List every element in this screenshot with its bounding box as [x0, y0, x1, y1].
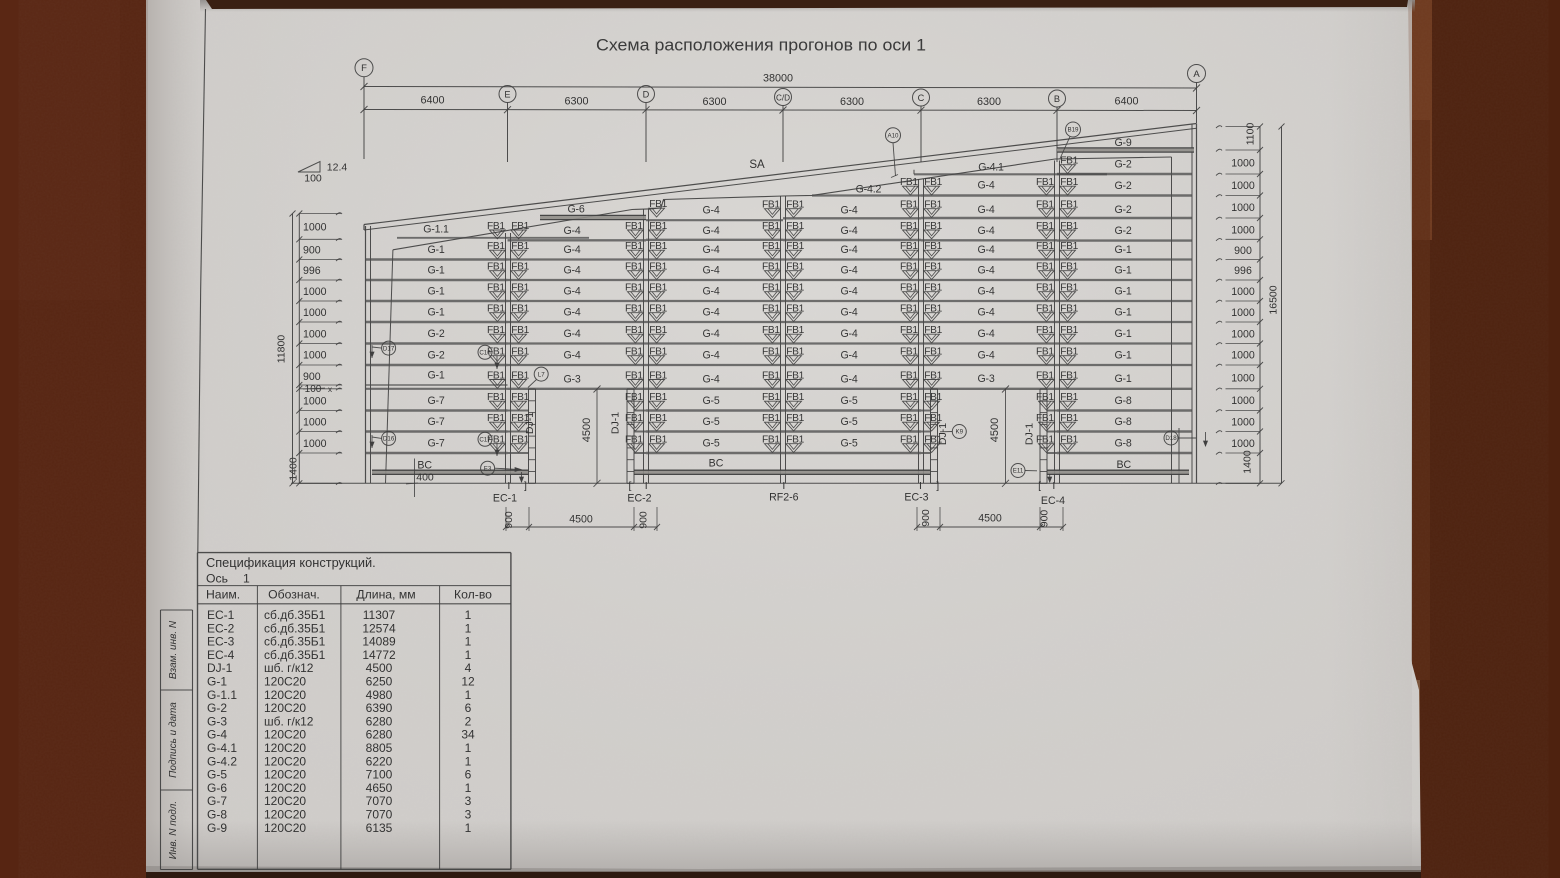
svg-text:G-1: G-1 — [427, 307, 444, 319]
svg-text:G-1: G-1 — [427, 244, 444, 256]
svg-text:G-4: G-4 — [563, 265, 580, 277]
svg-text:B: B — [1054, 94, 1060, 104]
svg-text:G-3: G-3 — [977, 373, 994, 385]
svg-text:G-1: G-1 — [207, 675, 227, 689]
svg-text:G-1: G-1 — [1114, 244, 1131, 256]
svg-text:1000: 1000 — [1231, 157, 1255, 169]
svg-text:Спецификация конструкций.: Спецификация конструкций. — [206, 555, 376, 570]
svg-text:I: I — [645, 480, 648, 492]
svg-text:G-4.1: G-4.1 — [978, 161, 1004, 173]
svg-text:6390: 6390 — [366, 701, 393, 715]
svg-text:G-4: G-4 — [977, 265, 994, 277]
svg-text:100: 100 — [305, 384, 322, 395]
svg-text:G-4: G-4 — [563, 328, 580, 340]
svg-text:120С20: 120С20 — [264, 794, 306, 808]
svg-text:900: 900 — [303, 244, 321, 256]
svg-text:A10: A10 — [887, 132, 899, 139]
svg-text:EC-4: EC-4 — [1041, 495, 1065, 507]
svg-text:6300: 6300 — [702, 96, 726, 108]
svg-text:сб.дб.35Б1: сб.дб.35Б1 — [264, 648, 326, 662]
svg-text:1: 1 — [465, 608, 472, 622]
svg-text:1000: 1000 — [303, 416, 327, 428]
svg-text:11800: 11800 — [276, 335, 288, 364]
svg-text:сб.дб.35Б1: сб.дб.35Б1 — [264, 635, 326, 649]
svg-text:1000: 1000 — [303, 307, 327, 319]
svg-text:G-2: G-2 — [1114, 225, 1131, 237]
svg-text:G-6: G-6 — [567, 204, 584, 216]
svg-text:G-1: G-1 — [427, 265, 444, 277]
svg-text:G-1: G-1 — [1114, 328, 1131, 340]
svg-text:E11: E11 — [1013, 468, 1024, 475]
svg-text:1400: 1400 — [1242, 450, 1254, 474]
svg-text:6: 6 — [465, 768, 472, 782]
svg-text:G-4: G-4 — [840, 225, 857, 237]
svg-text:1000: 1000 — [303, 438, 327, 450]
svg-text:996: 996 — [303, 265, 321, 277]
svg-text:400: 400 — [416, 472, 434, 484]
svg-text:120С20: 120С20 — [264, 768, 306, 782]
svg-text:A: A — [1193, 69, 1200, 80]
svg-text:120С20: 120С20 — [264, 741, 306, 755]
svg-text:x: x — [328, 385, 332, 394]
svg-text:6: 6 — [465, 701, 472, 715]
svg-text:G-1: G-1 — [1114, 373, 1131, 385]
svg-text:G-8: G-8 — [1114, 438, 1131, 450]
svg-text:1000: 1000 — [1231, 438, 1255, 450]
svg-text:16500: 16500 — [1268, 285, 1280, 314]
svg-text:G-7: G-7 — [427, 416, 444, 428]
svg-text:7070: 7070 — [366, 808, 393, 822]
svg-text:SA: SA — [749, 159, 765, 171]
svg-text:шб. г/к12: шб. г/к12 — [264, 714, 314, 728]
svg-text:G-4: G-4 — [702, 225, 719, 237]
svg-text:I: I — [1052, 480, 1055, 492]
svg-text:Наим.: Наим. — [206, 588, 240, 602]
svg-text:900: 900 — [1234, 245, 1252, 257]
svg-text:4500: 4500 — [569, 514, 593, 526]
svg-text:C16: C16 — [479, 350, 491, 357]
svg-text:6400: 6400 — [420, 95, 444, 107]
svg-text:G-4: G-4 — [977, 204, 994, 216]
svg-text:Подпись и дата: Подпись и дата — [168, 702, 179, 778]
svg-text:14772: 14772 — [362, 648, 396, 662]
svg-text:BC: BC — [417, 460, 432, 472]
svg-text:G-5: G-5 — [840, 416, 857, 428]
svg-text:Ось: Ось — [206, 572, 228, 586]
svg-text:G-2: G-2 — [427, 328, 444, 340]
svg-text:11307: 11307 — [363, 608, 396, 622]
svg-text:DJ-1: DJ-1 — [1024, 423, 1036, 445]
svg-text:E3: E3 — [484, 465, 492, 472]
svg-text:G-6: G-6 — [207, 781, 227, 795]
svg-text:G-8: G-8 — [207, 808, 227, 822]
svg-text:EC-4: EC-4 — [207, 648, 235, 662]
svg-text:1000: 1000 — [1231, 372, 1255, 384]
svg-text:G-1: G-1 — [1114, 286, 1131, 298]
svg-text:DJ-1: DJ-1 — [207, 661, 233, 675]
svg-text:12: 12 — [461, 675, 475, 689]
svg-text:G-4: G-4 — [702, 307, 719, 319]
svg-text:G-1: G-1 — [427, 370, 444, 382]
svg-text:G-1: G-1 — [427, 286, 444, 298]
svg-text:120С20: 120С20 — [264, 821, 306, 835]
svg-text:K9: K9 — [956, 429, 964, 436]
svg-text:шб. г/к12: шб. г/к12 — [264, 661, 314, 675]
svg-text:6135: 6135 — [366, 821, 393, 835]
svg-text:RF2-6: RF2-6 — [769, 492, 799, 504]
svg-text:G-4: G-4 — [563, 350, 580, 362]
svg-text:4650: 4650 — [366, 781, 393, 795]
svg-text:Взам. инв. N: Взам. инв. N — [168, 620, 179, 679]
svg-text:1000: 1000 — [1231, 349, 1255, 361]
svg-text:Кол-во: Кол-во — [454, 588, 492, 602]
svg-text:G-4: G-4 — [977, 225, 994, 237]
svg-text:38000: 38000 — [763, 73, 793, 85]
svg-text:7070: 7070 — [366, 794, 393, 808]
svg-text:G-4: G-4 — [563, 286, 580, 298]
svg-text:G-4: G-4 — [563, 244, 580, 256]
svg-text:G-4: G-4 — [977, 286, 994, 298]
svg-text:G-2: G-2 — [207, 701, 227, 715]
svg-text:Обознач.: Обознач. — [268, 588, 320, 602]
svg-text:D18: D18 — [1165, 435, 1177, 442]
svg-text:6300: 6300 — [840, 96, 864, 108]
svg-text:G-9: G-9 — [1114, 137, 1131, 149]
svg-text:G-5: G-5 — [207, 768, 227, 782]
svg-text:EC-3: EC-3 — [904, 492, 928, 504]
svg-text:900: 900 — [920, 509, 932, 527]
svg-text:G-1.1: G-1.1 — [423, 223, 449, 235]
svg-text:C: C — [918, 93, 925, 103]
svg-text:DJ-1: DJ-1 — [524, 412, 536, 434]
svg-text:8805: 8805 — [366, 741, 393, 755]
svg-text:1: 1 — [465, 635, 472, 649]
svg-text:сб.дб.35Б1: сб.дб.35Б1 — [264, 621, 326, 635]
svg-text:G-8: G-8 — [1114, 395, 1131, 407]
svg-text:1100: 1100 — [1245, 123, 1257, 146]
svg-text:100: 100 — [304, 173, 322, 185]
svg-text:G-7: G-7 — [207, 794, 227, 808]
svg-text:6400: 6400 — [1114, 96, 1138, 108]
svg-text:G-4: G-4 — [840, 244, 857, 256]
svg-text:G-4: G-4 — [563, 307, 580, 319]
svg-text:]: ] — [524, 480, 527, 492]
svg-text:EC-2: EC-2 — [207, 621, 235, 635]
svg-text:6250: 6250 — [366, 675, 393, 689]
svg-text:G-5: G-5 — [702, 438, 719, 450]
svg-text:1: 1 — [465, 821, 472, 835]
svg-text:1000: 1000 — [1231, 307, 1255, 319]
svg-text:1000: 1000 — [1231, 286, 1255, 298]
svg-text:G-1: G-1 — [1114, 307, 1131, 319]
svg-text:1000: 1000 — [303, 349, 327, 361]
svg-text:120С20: 120С20 — [264, 675, 306, 689]
svg-text:G-4.2: G-4.2 — [207, 754, 237, 768]
svg-text:G-3: G-3 — [207, 714, 227, 728]
svg-text:G-4: G-4 — [840, 205, 857, 217]
svg-text:6300: 6300 — [564, 95, 588, 107]
svg-text:G-4: G-4 — [702, 244, 719, 256]
svg-text:F: F — [361, 63, 367, 74]
svg-text:G-5: G-5 — [840, 438, 857, 450]
svg-text:]: ] — [936, 480, 939, 492]
svg-text:G-2: G-2 — [427, 350, 444, 362]
svg-text:G-3: G-3 — [563, 373, 580, 385]
svg-text:G-4: G-4 — [840, 328, 857, 340]
svg-text:I: I — [919, 480, 922, 492]
svg-text:EC-2: EC-2 — [627, 493, 651, 505]
svg-text:1000: 1000 — [1231, 225, 1255, 237]
svg-text:G-4: G-4 — [563, 225, 580, 237]
svg-text:G-4: G-4 — [977, 350, 994, 362]
svg-text:G-4: G-4 — [840, 307, 857, 319]
svg-text:G-4: G-4 — [702, 328, 719, 340]
svg-text:DJ-1: DJ-1 — [937, 423, 949, 445]
svg-text:I: I — [782, 480, 785, 492]
svg-text:6220: 6220 — [366, 754, 393, 768]
svg-text:1000: 1000 — [303, 395, 327, 407]
svg-text:G-4: G-4 — [977, 244, 994, 256]
svg-text:1: 1 — [465, 754, 472, 768]
svg-text:L7: L7 — [538, 371, 545, 378]
svg-text:2: 2 — [465, 714, 472, 728]
svg-text:120С20: 120С20 — [264, 808, 306, 822]
svg-text:4980: 4980 — [366, 688, 393, 702]
svg-text:G-9: G-9 — [207, 821, 227, 835]
svg-text:G-4: G-4 — [702, 373, 719, 385]
svg-text:1000: 1000 — [303, 221, 327, 233]
svg-text:6280: 6280 — [366, 714, 393, 728]
svg-text:4500: 4500 — [989, 418, 1001, 442]
svg-text:G-4: G-4 — [977, 180, 994, 192]
svg-text:G-1: G-1 — [1114, 265, 1131, 277]
svg-text:7100: 7100 — [366, 768, 393, 782]
svg-text:BC: BC — [1116, 459, 1131, 471]
svg-text:G-2: G-2 — [1114, 204, 1131, 216]
svg-text:Длина, мм: Длина, мм — [356, 588, 415, 602]
svg-text:G-8: G-8 — [1114, 416, 1131, 428]
svg-text:I: I — [507, 480, 510, 492]
svg-text:900: 900 — [303, 371, 321, 383]
svg-text:900: 900 — [1039, 510, 1051, 528]
svg-text:1400: 1400 — [288, 457, 300, 481]
svg-text:14089: 14089 — [362, 635, 396, 649]
svg-text:G-4: G-4 — [702, 350, 719, 362]
svg-text:G-2: G-2 — [1114, 180, 1131, 192]
svg-text:D: D — [643, 89, 650, 99]
svg-text:4: 4 — [465, 661, 472, 675]
svg-text:G-4: G-4 — [702, 205, 719, 217]
svg-text:G-2: G-2 — [1114, 159, 1131, 171]
svg-text:1: 1 — [465, 741, 472, 755]
svg-text:1: 1 — [465, 648, 472, 662]
svg-text:1000: 1000 — [1231, 417, 1255, 429]
svg-text:Схема расположения прогонов по: Схема расположения прогонов по оси 1 — [596, 36, 926, 55]
svg-text:34: 34 — [461, 728, 475, 742]
svg-text:1000: 1000 — [1231, 328, 1255, 340]
svg-text:G-4: G-4 — [977, 328, 994, 340]
svg-text:G-5: G-5 — [702, 395, 719, 407]
svg-text:G-4: G-4 — [840, 286, 857, 298]
svg-text:3: 3 — [465, 808, 472, 822]
svg-text:G-7: G-7 — [427, 438, 444, 450]
svg-text:1000: 1000 — [303, 328, 327, 340]
svg-text:120С20: 120С20 — [264, 728, 306, 742]
svg-text:120С20: 120С20 — [264, 701, 306, 715]
svg-text:4500: 4500 — [581, 418, 593, 442]
svg-text:Инв. N подл.: Инв. N подл. — [168, 801, 179, 859]
svg-text:G-4: G-4 — [977, 307, 994, 319]
svg-text:G-4: G-4 — [702, 286, 719, 298]
svg-text:G-5: G-5 — [840, 395, 857, 407]
svg-text:[: [ — [629, 480, 632, 492]
svg-text:1: 1 — [465, 781, 472, 795]
svg-text:EC-1: EC-1 — [493, 493, 517, 505]
svg-text:1: 1 — [465, 621, 472, 635]
svg-text:G-1.1: G-1.1 — [207, 688, 237, 702]
svg-text:D17: D17 — [383, 345, 395, 352]
svg-text:4500: 4500 — [978, 513, 1002, 525]
svg-text:G-7: G-7 — [427, 395, 444, 407]
svg-text:12574: 12574 — [362, 621, 396, 635]
svg-text:6300: 6300 — [977, 96, 1001, 108]
svg-text:1000: 1000 — [1231, 395, 1255, 407]
svg-text:G-1: G-1 — [1114, 350, 1131, 362]
svg-text:G-4: G-4 — [207, 728, 227, 742]
svg-text:1000: 1000 — [1231, 180, 1255, 192]
svg-text:B19: B19 — [1067, 127, 1079, 134]
svg-text:6280: 6280 — [366, 728, 393, 742]
svg-text:120С20: 120С20 — [264, 781, 306, 795]
svg-text:G-4.1: G-4.1 — [207, 741, 237, 755]
svg-text:BC: BC — [709, 457, 724, 469]
svg-text:DJ-1: DJ-1 — [610, 412, 622, 434]
svg-text:EC-1: EC-1 — [207, 608, 235, 622]
svg-text:G-4: G-4 — [840, 373, 857, 385]
svg-text:4500: 4500 — [366, 661, 393, 675]
svg-text:C/D: C/D — [776, 93, 790, 102]
svg-text:G-5: G-5 — [702, 416, 719, 428]
svg-text:900: 900 — [503, 511, 515, 529]
svg-text:сб.дб.35Б1: сб.дб.35Б1 — [264, 608, 326, 622]
svg-text:120С20: 120С20 — [264, 688, 306, 702]
svg-text:3: 3 — [465, 794, 472, 808]
svg-text:1: 1 — [465, 688, 472, 702]
svg-text:12.4: 12.4 — [327, 162, 348, 174]
svg-text:1: 1 — [243, 572, 250, 586]
svg-text:996: 996 — [1234, 265, 1252, 277]
svg-text:1000: 1000 — [303, 286, 327, 298]
svg-text:G-4: G-4 — [702, 265, 719, 277]
svg-text:G-4: G-4 — [840, 350, 857, 362]
svg-text:C17: C17 — [479, 437, 491, 444]
svg-text:G-4: G-4 — [840, 265, 857, 277]
svg-text:G-4.2: G-4.2 — [856, 184, 882, 196]
svg-text:EC-3: EC-3 — [207, 635, 235, 649]
svg-text:E: E — [504, 89, 510, 99]
svg-text:1000: 1000 — [1231, 202, 1255, 214]
svg-text:D16: D16 — [383, 436, 395, 443]
svg-text:900: 900 — [638, 511, 650, 529]
svg-text:[: [ — [1038, 480, 1041, 492]
svg-text:120С20: 120С20 — [264, 754, 306, 768]
